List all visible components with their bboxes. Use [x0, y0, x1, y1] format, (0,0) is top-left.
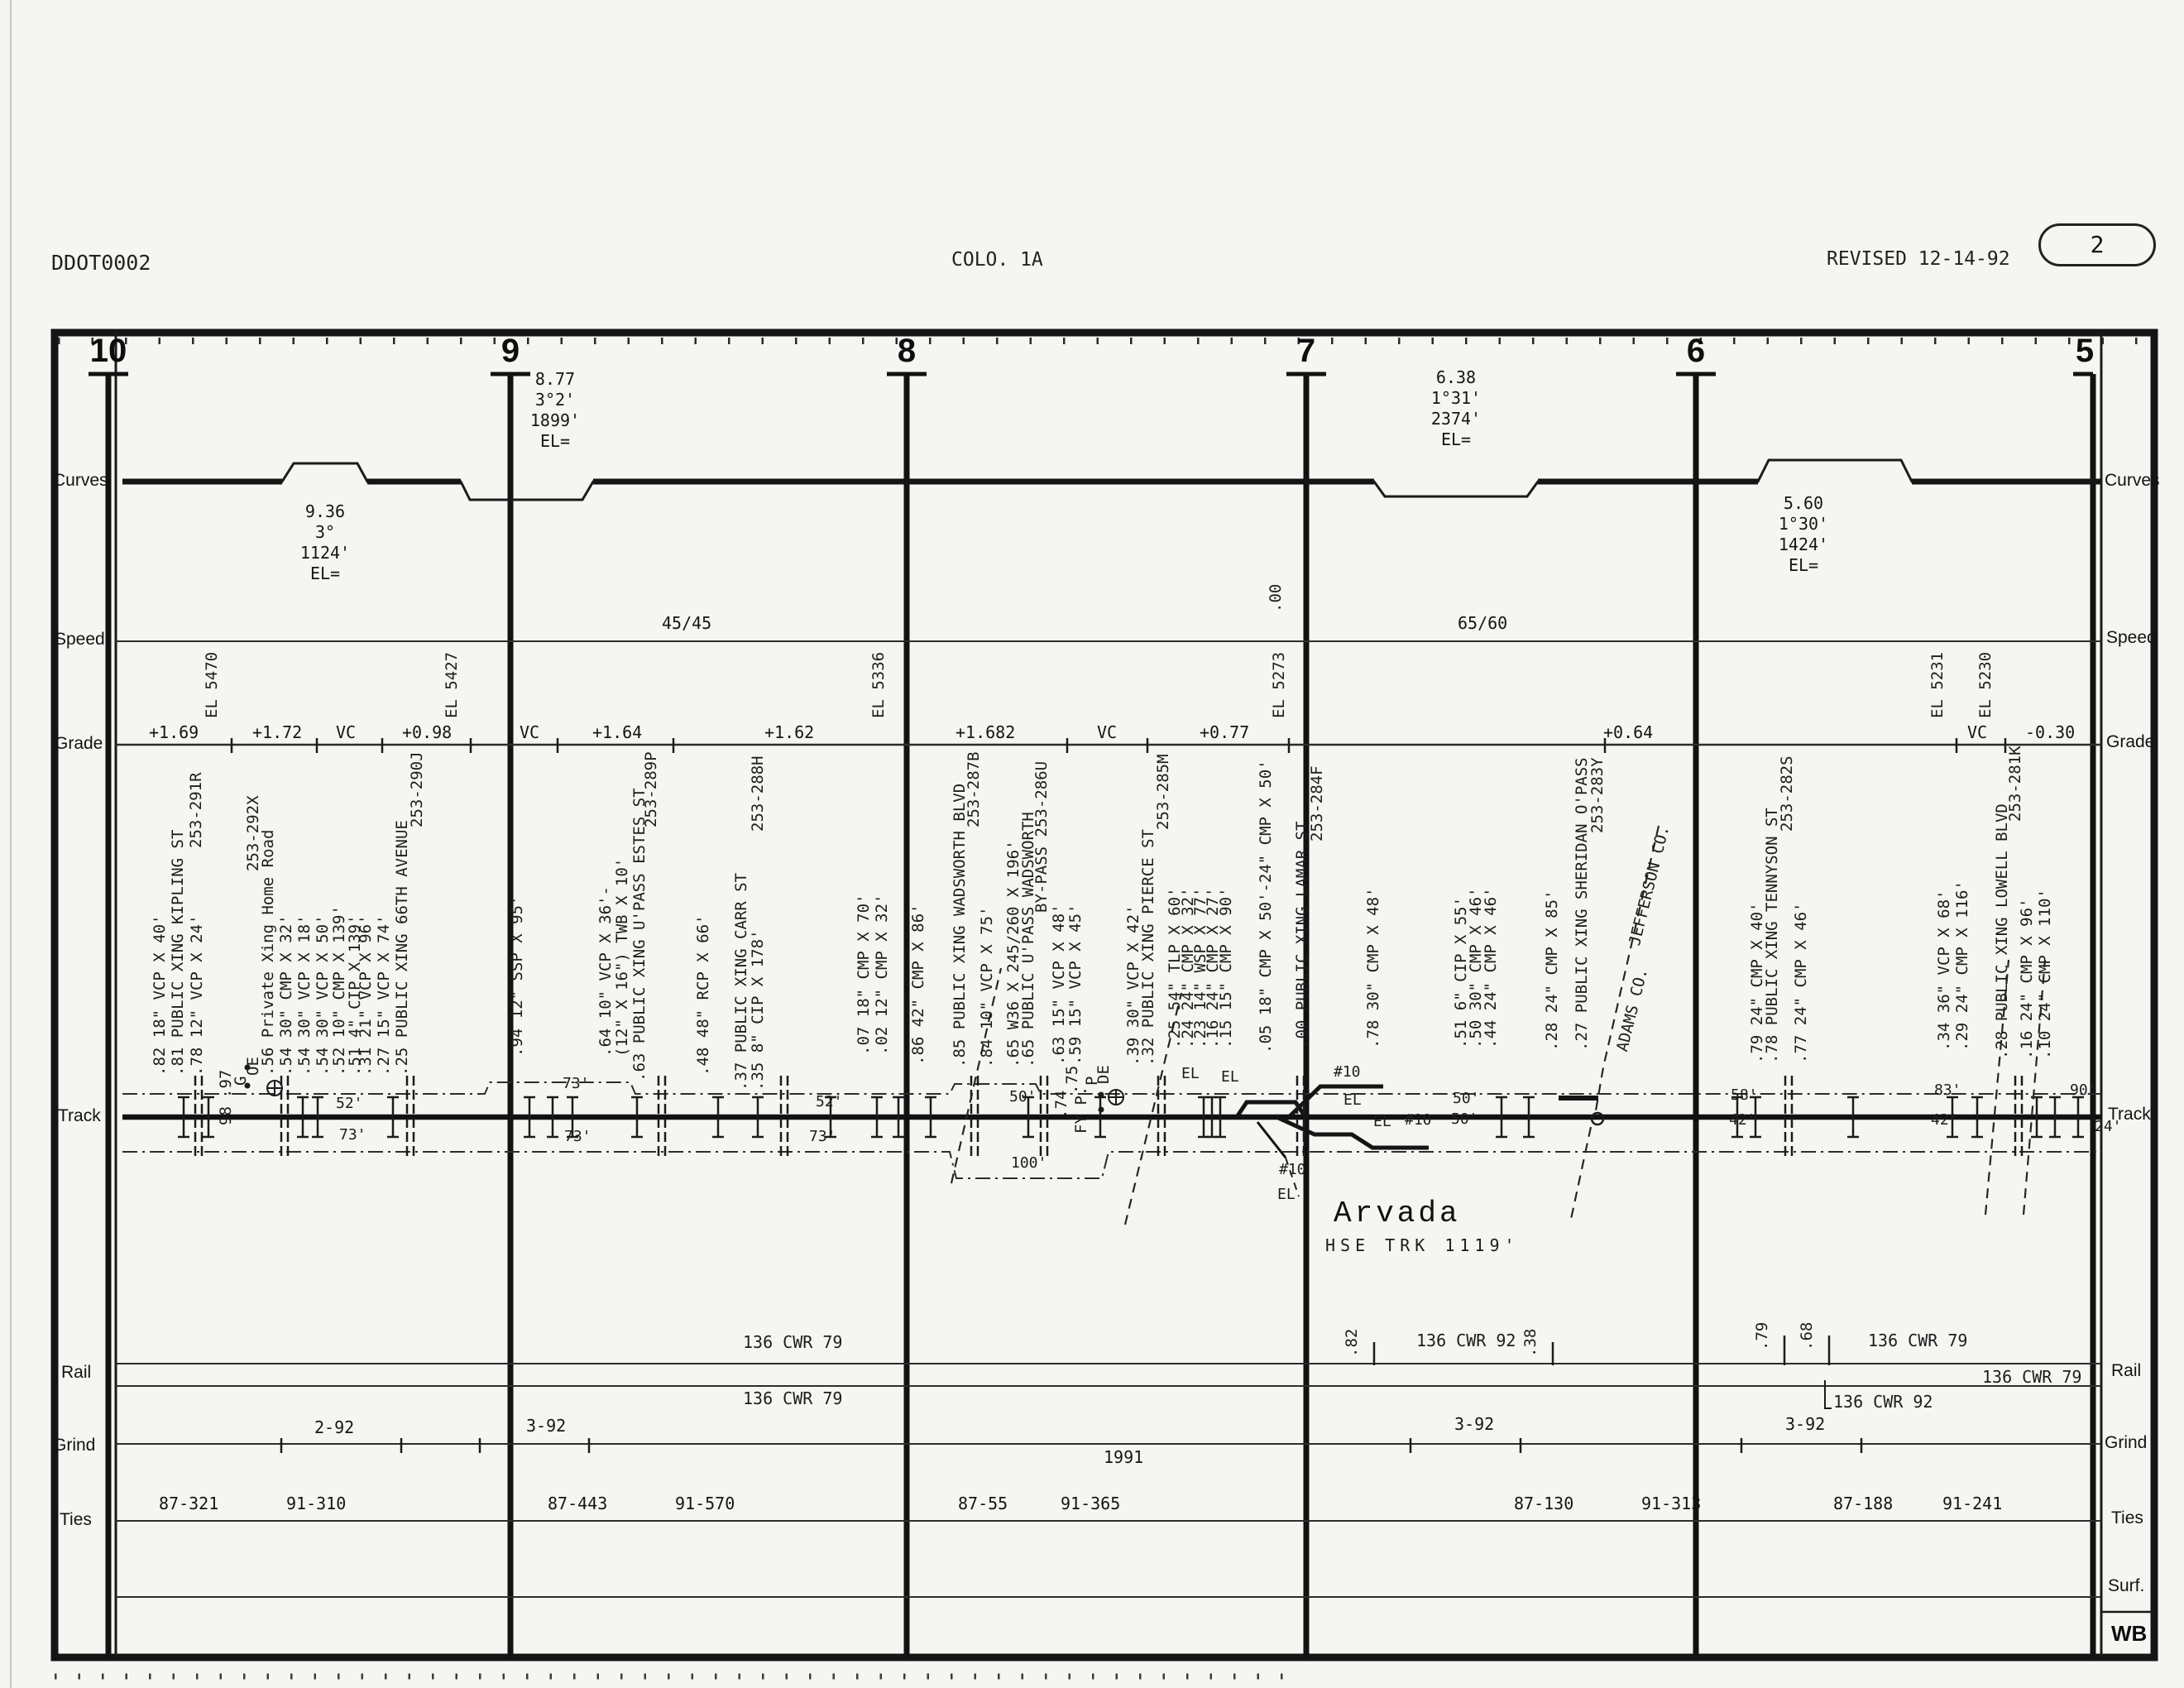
- feature-label: .52 10" CMP X 139': [331, 905, 347, 1076]
- feature-label: G: [232, 1077, 249, 1086]
- turnout-size-label: #10: [1334, 1064, 1361, 1081]
- milepost-10: 10: [75, 333, 141, 369]
- feature-label: 253-288H: [750, 755, 766, 832]
- feature-label: .32 PUBLIC XING PIERCE ST: [1140, 829, 1157, 1066]
- ties-value: 87-130: [1514, 1494, 1573, 1513]
- feature-label: .15 15" CMP X 90': [1218, 888, 1234, 1048]
- feature-label: 253-281K: [2007, 746, 2024, 822]
- feature-label: .25 PUBLIC XING 66TH AVENUE: [394, 820, 410, 1076]
- feature-label: .82 18" VCP X 40': [151, 915, 168, 1076]
- track-chart-page: { "header": { "doc_id": "DDOT0002", "she…: [0, 0, 2184, 1688]
- grade-segment: +1.682: [955, 723, 1015, 741]
- revision-date: REVISED 12-14-92: [1827, 247, 2010, 271]
- curve-data-6.38: 6.38 1°31' 2374' EL=: [1386, 367, 1526, 450]
- row-label-grind-right: Grind: [2105, 1434, 2147, 1452]
- feature-label: .27 PUBLIC XING SHERIDAN O'PASS: [1573, 757, 1590, 1051]
- feature-label: .54 30" VCP X 18': [296, 915, 313, 1076]
- turnout-size-label: #10: [1279, 1162, 1306, 1178]
- row-label-rail-left: Rail: [61, 1364, 91, 1382]
- feature-label: .44 24" CMP X 46': [1482, 888, 1499, 1048]
- speed-zone-1: 45/45: [662, 614, 711, 632]
- feature-label: .16 24" CMP X 96': [2019, 899, 2035, 1059]
- milepost-6: 6: [1663, 333, 1729, 369]
- track-note: 50': [1009, 1089, 1037, 1105]
- rail-limit-marker: .82: [1343, 1329, 1360, 1357]
- grade-elevation: EL 5336: [870, 652, 887, 718]
- track-note: 52': [816, 1094, 843, 1110]
- row-label-curves-left: Curves: [53, 472, 108, 490]
- electric-lock-label: EL: [1277, 1187, 1296, 1203]
- row-label-track-left: Track: [58, 1107, 101, 1125]
- document-id: DDOT0002: [51, 252, 151, 275]
- row-label-grade-left: Grade: [55, 735, 103, 753]
- feature-label: 98: [218, 1106, 234, 1125]
- grade-elevation: EL 5273: [1271, 652, 1287, 718]
- ties-value: 91-310: [286, 1494, 346, 1513]
- feature-label: .86 42" CMP X 86': [910, 904, 927, 1065]
- station-name: Arvada: [1334, 1198, 1461, 1230]
- turnout-size-label: #10: [1405, 1112, 1432, 1129]
- grind-date: 3-92: [526, 1417, 566, 1435]
- track-note: 100': [1011, 1155, 1046, 1172]
- row-line-upper: [122, 1082, 2101, 1094]
- grade-segment: VC: [520, 723, 539, 741]
- grind-date: 2-92: [314, 1418, 354, 1436]
- electric-lock-label: EL: [1343, 1092, 1362, 1109]
- rail-weight-label: 136 CWR 79: [1868, 1332, 1967, 1349]
- ties-value: 91-241: [1942, 1494, 2002, 1513]
- feature-label: .54 30" VCP X 50': [314, 915, 331, 1076]
- rail-limit-marker: .38: [1522, 1329, 1539, 1357]
- feature-label: .63 PUBLIC XING U'PASS ESTES ST: [631, 788, 648, 1081]
- track-note: 58': [1731, 1087, 1758, 1104]
- row-label-ties-right: Ties: [2111, 1509, 2143, 1527]
- feature-label: .74: [1053, 1091, 1070, 1119]
- feature-label: .00 PUBLIC XING LAMAR ST: [1294, 821, 1310, 1048]
- grade-segment: +0.98: [402, 723, 452, 741]
- feature-label: .27 15" VCP X 74': [376, 915, 392, 1076]
- feature-label: .78 PUBLIC XING TENNYSON ST: [1764, 808, 1780, 1063]
- track-note: 83': [1934, 1082, 1961, 1099]
- track-note: 73': [564, 1129, 591, 1145]
- feature-label: 253-289P: [643, 751, 659, 827]
- track-note: 52': [336, 1096, 363, 1112]
- feature-label: (12" X 16") TWB X 10': [614, 858, 630, 1057]
- grade-elevation: EL 5427: [443, 652, 460, 718]
- grade-segment: +1.69: [149, 723, 199, 741]
- direction-label: WB: [2111, 1622, 2147, 1645]
- grade-segment: +1.62: [764, 723, 814, 741]
- feature-label: BY-PASS 253-286U: [1033, 761, 1050, 913]
- track-note: 24': [2095, 1119, 2122, 1135]
- feature-label: .78 12" VCP X 24': [189, 915, 205, 1076]
- speed-milepost-marker: .00: [1267, 584, 1284, 612]
- feature-label: .28 24" CMP X 85': [1544, 890, 1560, 1051]
- grade-segment: VC: [1967, 723, 1987, 741]
- rail-weight-label: 136 CWR 92: [1416, 1332, 1516, 1349]
- feature-label: 253-283Y: [1589, 757, 1606, 833]
- ties-value: 87-321: [159, 1494, 218, 1513]
- grind-date: 1991: [1104, 1448, 1143, 1466]
- rail-limit-marker: .68: [1798, 1322, 1815, 1350]
- grade-elevation: EL 5230: [1977, 652, 1994, 718]
- feature-label: .84 10" VCP X 75': [979, 907, 995, 1067]
- feature-label: 253-285M: [1155, 754, 1171, 830]
- grade-segment: +1.72: [252, 723, 302, 741]
- track-note: 73': [563, 1076, 590, 1092]
- track-note: 73': [809, 1129, 836, 1145]
- rail-label-bracket: [1825, 1380, 1832, 1408]
- ties-value: 87-188: [1833, 1494, 1893, 1513]
- feature-label: DE: [1095, 1065, 1112, 1084]
- milepost-7: 7: [1273, 333, 1339, 369]
- curve-data-5.60: 5.60 1°30' 1424' EL=: [1733, 493, 1874, 576]
- feature-label: .54 30" CMP X 32': [278, 915, 295, 1076]
- curve-data-8.77: 8.77 3°2' 1899' EL=: [485, 369, 625, 452]
- feature-label: .35 8" CIP X 178': [750, 930, 766, 1091]
- row-label-grade-right: Grade: [2106, 733, 2154, 751]
- feature-label: 253-284F: [1309, 765, 1325, 842]
- feature-label: .02 12" CMP X 32': [874, 894, 890, 1055]
- feature-label: 253-291R: [188, 772, 204, 848]
- feature-label: 253-287B: [965, 751, 982, 827]
- grade-segment: +0.64: [1603, 723, 1653, 741]
- grind-date: 3-92: [1785, 1415, 1825, 1433]
- rail-weight-label: 136 CWR 92: [1833, 1393, 1933, 1410]
- ties-value: 87-443: [548, 1494, 607, 1513]
- row-label-speed-left: Speed: [55, 631, 105, 649]
- feature-label: .34 36" VCP X 68': [1936, 890, 1952, 1051]
- rail-weight-label: 136 CWR 79: [743, 1390, 842, 1407]
- feature-label: .63 15" VCP X 48': [1051, 904, 1067, 1065]
- feature-label: .37 PUBLIC XING CARR ST: [733, 873, 750, 1091]
- milepost-9: 9: [477, 333, 544, 369]
- row-line-lower: [122, 1152, 2101, 1178]
- feature-label: .07 18" CMP X 70': [855, 894, 872, 1055]
- row-label-ties-left: Ties: [60, 1511, 92, 1529]
- row-label-surf-right: Surf.: [2108, 1577, 2144, 1595]
- row-label-grind-left: Grind: [53, 1436, 95, 1455]
- feature-label: .48 48" RCP X 66': [695, 915, 711, 1076]
- ties-value: 91-365: [1061, 1494, 1120, 1513]
- page-number-badge: 2: [2038, 223, 2156, 266]
- feature-label: .81 PUBLIC XING KIPLING ST: [170, 830, 186, 1076]
- feature-label: .64 10" VCP X 36'-: [597, 886, 614, 1057]
- grade-elevation: EL 5231: [1929, 652, 1946, 718]
- feature-label: .28 PUBLIC XING LOWELL BLVD: [1994, 803, 2010, 1059]
- feature-label: EL: [1221, 1069, 1239, 1086]
- ties-value: 91-313: [1641, 1494, 1701, 1513]
- milepost-5: 5: [2052, 333, 2118, 369]
- feature-label: .59 15" VCP X 45': [1067, 904, 1084, 1065]
- speed-zone-2: 65/60: [1458, 614, 1507, 632]
- feature-label: .31 21" VCP X 96': [357, 915, 374, 1076]
- grade-segment: VC: [336, 723, 356, 741]
- feature-label: FY P.: [1073, 1086, 1090, 1134]
- grade-segment: -0.30: [2025, 723, 2075, 741]
- rail-weight-label: 136 CWR 79: [743, 1334, 842, 1350]
- row-label-rail-right: Rail: [2111, 1362, 2141, 1380]
- feature-label: .29 24" CMP X 116': [1954, 880, 1971, 1051]
- electric-lock-label: EL: [1373, 1114, 1391, 1130]
- grind-date: 3-92: [1454, 1415, 1494, 1433]
- row-label-speed-right: Speed: [2106, 629, 2157, 647]
- feature-label: .56 Private Xing Home Road: [260, 830, 276, 1076]
- rail-limit-marker: .79: [1754, 1322, 1770, 1350]
- feature-label: .10 24" CMP X 110': [2037, 889, 2053, 1059]
- track-note: EL: [1181, 1066, 1200, 1082]
- grade-segment: VC: [1097, 723, 1117, 741]
- track-note: 50': [1453, 1091, 1480, 1107]
- house-track-note: HSE TRK 1119': [1325, 1236, 1520, 1254]
- track-note: 90': [2070, 1082, 2097, 1099]
- row-label-curves-right: Curves: [2105, 472, 2160, 490]
- rail-weight-label: 136 CWR 79: [1982, 1369, 2081, 1385]
- curve-data-9.36: 9.36 3° 1124' EL=: [255, 501, 395, 584]
- feature-label: .94 12" SSP X 95': [509, 896, 525, 1057]
- track-note: 50': [1451, 1111, 1478, 1128]
- feature-label: 253-290J: [409, 751, 425, 827]
- ties-value: 91-570: [675, 1494, 735, 1513]
- track-note: 42': [1729, 1112, 1756, 1129]
- sheet-title: COLO. 1A: [951, 248, 1043, 271]
- feature-label: 253-282S: [1779, 755, 1795, 832]
- track-note: 73': [339, 1127, 366, 1144]
- feature-label: .05 18" CMP X 50'-24" CMP X 50': [1257, 760, 1274, 1053]
- feature-label: .78 30" CMP X 48': [1365, 888, 1382, 1048]
- grade-elevation: EL 5470: [204, 652, 220, 718]
- track-note: 42': [1931, 1112, 1958, 1129]
- ties-value: 87-55: [958, 1494, 1008, 1513]
- feature-label: .77 24" CMP X 46': [1793, 903, 1809, 1063]
- grade-segment: +0.77: [1200, 723, 1249, 741]
- milepost-8: 8: [874, 333, 940, 369]
- grade-segment: +1.64: [592, 723, 642, 741]
- grind-ticks: [281, 1438, 1861, 1453]
